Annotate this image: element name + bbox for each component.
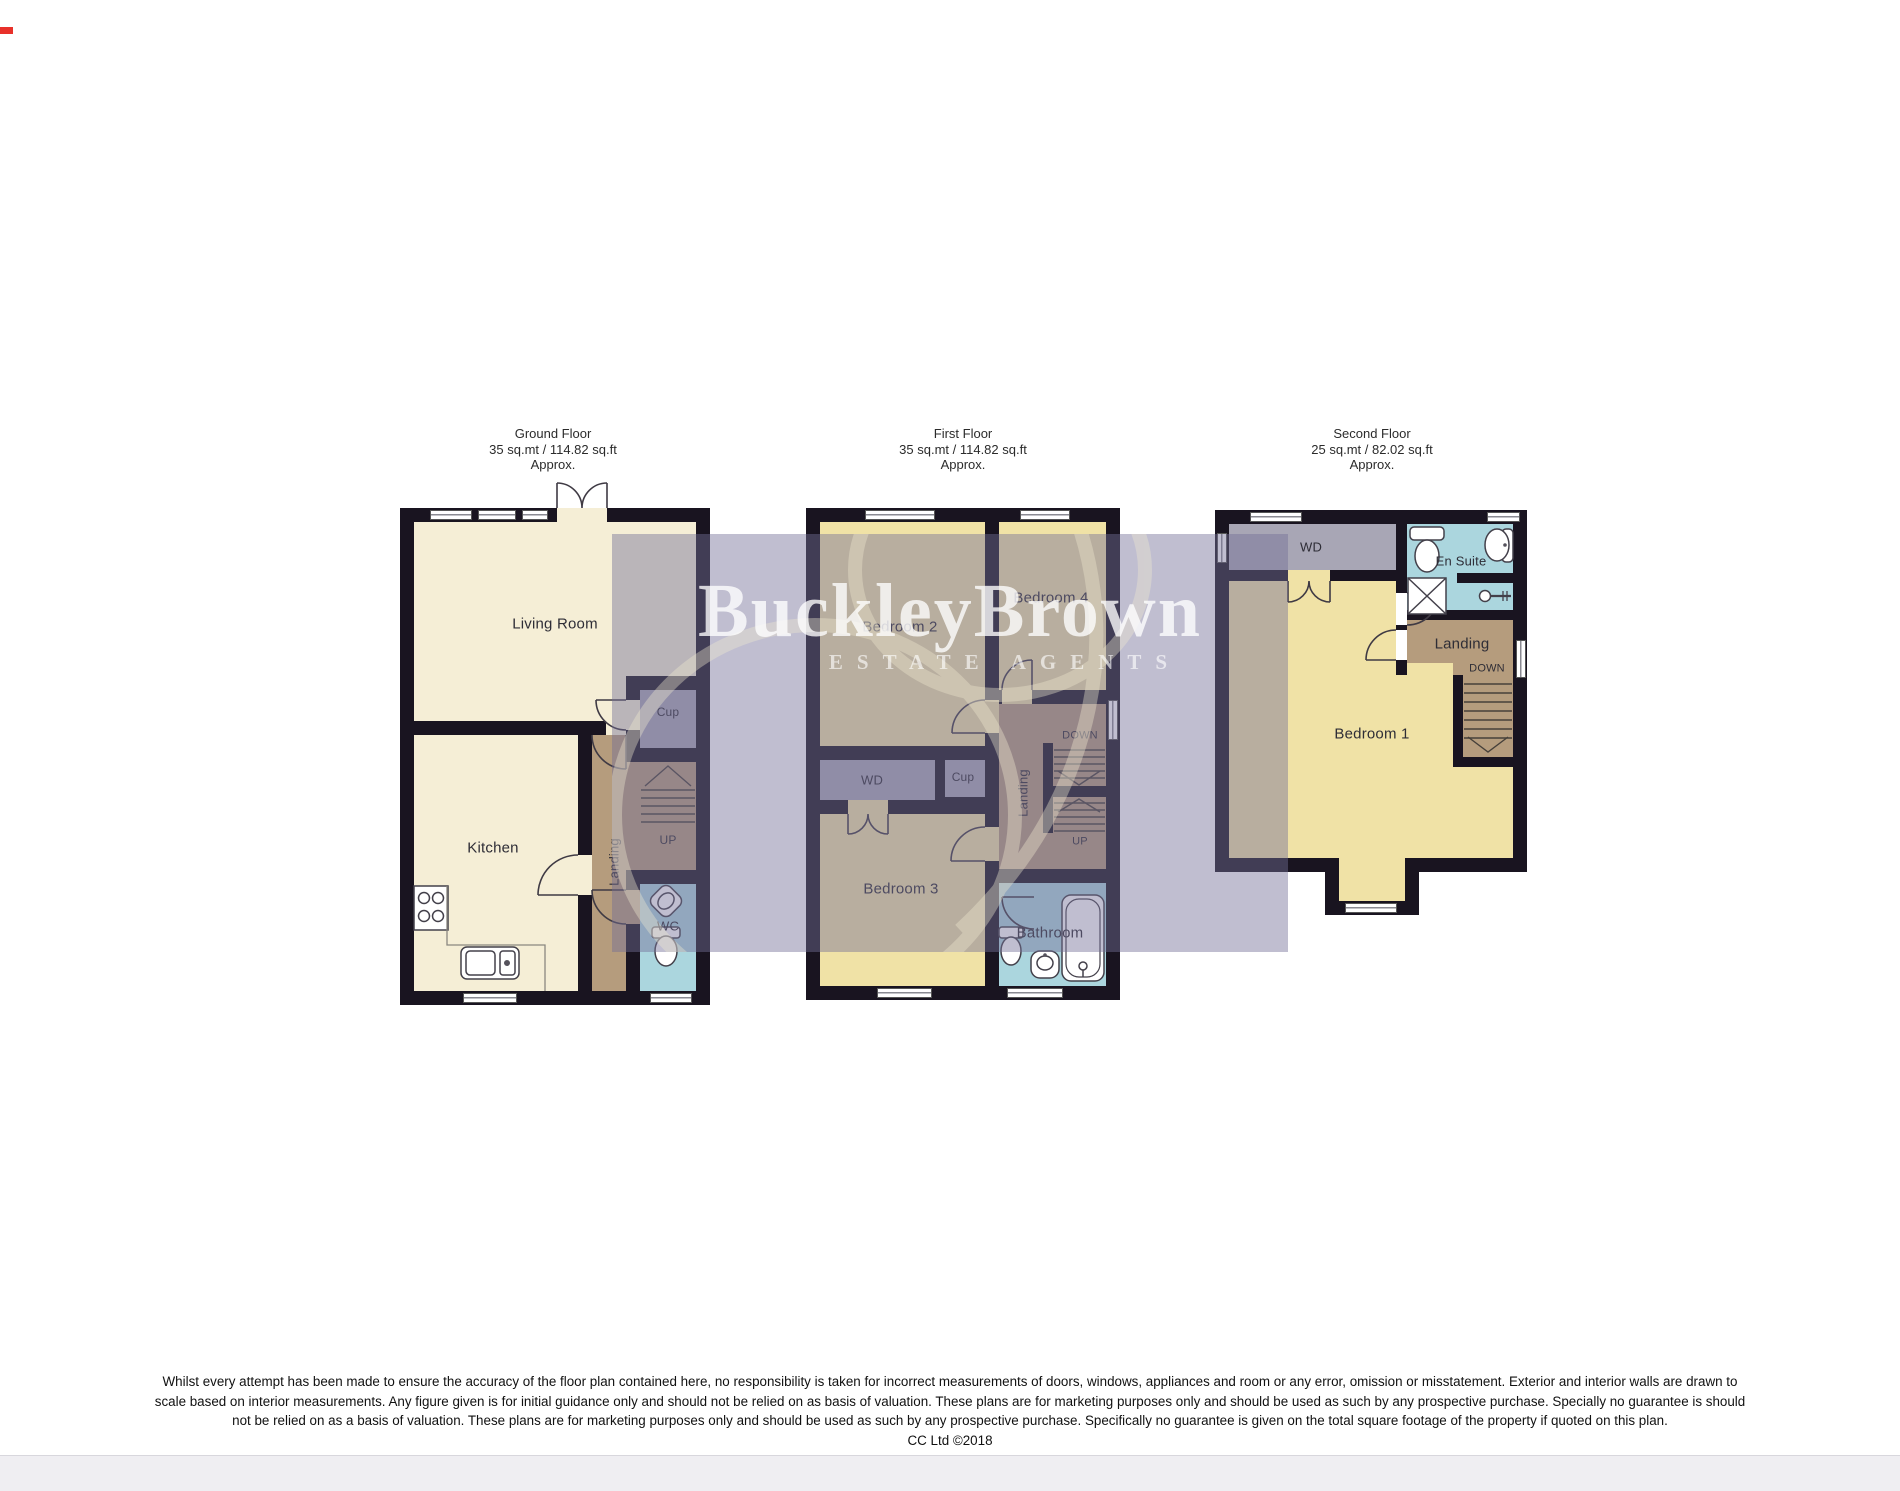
first-floor-header: First Floor 35 sq.mt / 114.82 sq.ft Appr…: [813, 426, 1113, 473]
window: [1020, 510, 1070, 520]
window: [650, 993, 692, 1003]
wall: [1407, 610, 1513, 620]
wall: [1396, 660, 1407, 675]
floorplan-page: Ground Floor 35 sq.mt / 114.82 sq.ft App…: [0, 0, 1900, 1491]
floor-title: First Floor: [813, 426, 1113, 442]
disclaimer-line: Whilst every attempt has been made to en…: [0, 1372, 1900, 1392]
label-living-room: Living Room: [512, 617, 598, 632]
disclaimer-line: scale based on interior measurements. An…: [0, 1392, 1900, 1412]
label-down-second: DOWN: [1469, 664, 1505, 675]
wall: [1513, 510, 1527, 872]
window: [430, 510, 472, 520]
floor-area: 35 sq.mt / 114.82 sq.ft: [813, 442, 1113, 458]
floor-approx: Approx.: [403, 457, 703, 473]
brand-watermark: BuckleyBrown: [590, 568, 1310, 655]
floor-approx: Approx.: [1222, 457, 1522, 473]
ground-floor-header: Ground Floor 35 sq.mt / 114.82 sq.ft App…: [403, 426, 703, 473]
floor-area: 35 sq.mt / 114.82 sq.ft: [403, 442, 703, 458]
wall: [400, 508, 414, 1005]
label-wd-second: WD: [1300, 541, 1322, 554]
dormer-bay: [1339, 858, 1405, 901]
wall: [806, 986, 1120, 1000]
wall: [1405, 858, 1527, 872]
window: [1250, 512, 1302, 522]
wall: [1457, 573, 1513, 583]
wall: [1396, 524, 1407, 570]
disclaimer: Whilst every attempt has been made to en…: [0, 1372, 1900, 1450]
wall: [806, 508, 1120, 522]
stairwell-second: [1463, 675, 1513, 757]
floor-title: Ground Floor: [403, 426, 703, 442]
window: [1487, 512, 1520, 522]
front-door-opening: [557, 508, 607, 522]
window: [877, 988, 932, 998]
label-kitchen: Kitchen: [467, 841, 518, 856]
window: [1007, 988, 1063, 998]
window: [478, 510, 516, 520]
window: [1345, 903, 1397, 913]
front-door-icon: [557, 483, 607, 508]
room-bedroom-1: [1453, 767, 1513, 858]
window: [1516, 640, 1526, 678]
room-kitchen: [414, 735, 578, 991]
wall: [1396, 570, 1407, 593]
window: [865, 510, 935, 520]
disclaimer-line: not be relied on as a basis of valuation…: [0, 1411, 1900, 1431]
wall: [400, 721, 606, 735]
door-opening: [578, 855, 592, 895]
wall: [1453, 675, 1463, 757]
red-mark: [0, 27, 13, 34]
window: [463, 993, 517, 1003]
room-en-suite: [1407, 524, 1513, 613]
footer-band: [0, 1456, 1900, 1491]
brand-tagline-watermark: ESTATE AGENTS: [645, 650, 1365, 675]
wall: [1396, 625, 1407, 630]
label-landing-second: Landing: [1435, 637, 1490, 652]
label-bedroom-1: Bedroom 1: [1334, 727, 1409, 742]
window: [522, 510, 548, 520]
floor-title: Second Floor: [1222, 426, 1522, 442]
wall: [1453, 757, 1513, 767]
room-bedroom-1: [1396, 663, 1453, 858]
disclaimer-line: CC Ltd ©2018: [0, 1431, 1900, 1451]
floor-approx: Approx.: [813, 457, 1113, 473]
second-floor-header: Second Floor 25 sq.mt / 82.02 sq.ft Appr…: [1222, 426, 1522, 473]
floor-area: 25 sq.mt / 82.02 sq.ft: [1222, 442, 1522, 458]
label-en-suite: En Suite: [1436, 555, 1487, 568]
